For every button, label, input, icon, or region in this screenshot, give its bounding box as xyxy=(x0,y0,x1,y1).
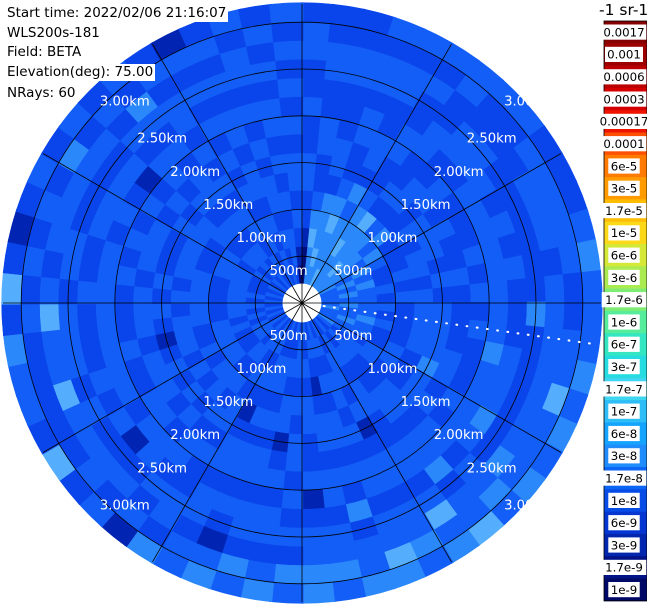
heatmap-cell xyxy=(39,302,60,332)
start-time-text: Start time: 2022/02/06 21:16:07 xyxy=(5,5,228,22)
range-ring-label: 2.50km xyxy=(137,132,187,147)
heatmap-cell xyxy=(301,583,335,604)
elevation-text: Elevation(deg): 75.00 xyxy=(5,64,155,81)
heatmap-cell xyxy=(77,302,97,328)
range-ring-label: 2.50km xyxy=(467,461,517,476)
colorbar-tick-label: 0.0017 xyxy=(603,25,644,39)
heatmap-cell xyxy=(2,302,23,336)
heatmap-cell xyxy=(284,134,303,154)
range-ring-label: 2.50km xyxy=(137,461,187,476)
heatmap-cell xyxy=(279,96,302,116)
colorbar-tick-label: 3e-5 xyxy=(611,182,638,196)
colorbar-tick-label: 6e-9 xyxy=(611,516,638,530)
heatmap-cell xyxy=(302,396,315,416)
colorbar-tick-label: 3e-8 xyxy=(611,449,638,463)
heatmap-cell xyxy=(269,3,303,24)
heatmap-cell xyxy=(302,378,313,398)
colorbar-tick-label: 3e-9 xyxy=(611,538,638,552)
range-ring-label: 2.50km xyxy=(467,132,517,147)
heatmap-cell xyxy=(301,489,324,509)
colorbar-tick-label: 0.0006 xyxy=(603,70,644,84)
colorbar-tick-label: 1e-6 xyxy=(611,315,638,329)
heatmap-cell xyxy=(488,280,508,303)
heatmap-cell xyxy=(414,289,434,304)
colorbar-tick-label: 6e-6 xyxy=(611,248,638,262)
heatmap-cell xyxy=(133,302,153,321)
range-ring-label: 1.00km xyxy=(237,231,287,246)
range-ring-label: 1.50km xyxy=(401,395,451,410)
heatmap-cell xyxy=(301,40,331,61)
heatmap-cell xyxy=(470,283,490,304)
lidar-scan-window: 500m1.00km1.50km2.00km2.50km3.00km500m1.… xyxy=(0,0,647,607)
heatmap-cell xyxy=(39,274,60,304)
colorbar-tick-label: 1.7e-8 xyxy=(605,471,643,485)
heatmap-cell xyxy=(273,40,303,61)
colorbar-tick-label: 3e-6 xyxy=(611,271,638,285)
colorbar-tick-label: 6e-8 xyxy=(611,427,638,441)
heatmap-cell xyxy=(277,78,303,98)
range-ring-label: 3.00km xyxy=(100,499,150,514)
nrays-text: NRays: 60 xyxy=(5,85,78,102)
heatmap-cell xyxy=(20,272,41,304)
heatmap-cell xyxy=(582,270,603,304)
colorbar-tick-label: 0.0003 xyxy=(603,92,644,106)
colorbar-unit-label: -1 sr-1 xyxy=(599,1,647,19)
range-ring-label: 1.50km xyxy=(401,198,451,213)
heatmap-cell xyxy=(208,303,228,314)
field-text: Field: BETA xyxy=(5,44,83,61)
heatmap-cell xyxy=(507,278,527,304)
range-ring-label: 1.50km xyxy=(203,395,253,410)
heatmap-cell xyxy=(563,272,584,304)
colorbar-tick-label: 1.7e-9 xyxy=(605,561,643,575)
heatmap-cell xyxy=(290,190,303,210)
heatmap-cell xyxy=(544,274,565,304)
heatmap-cell xyxy=(288,171,303,191)
heatmap-cell xyxy=(269,583,303,604)
range-ring-label: 1.00km xyxy=(368,362,418,377)
colorbar-tick-label: 6e-5 xyxy=(611,159,638,173)
colorbar-tick-label: 0.001 xyxy=(607,48,641,62)
range-ring-label: 500m xyxy=(334,264,372,279)
range-ring-label: 1.00km xyxy=(368,231,418,246)
heatmap-cell xyxy=(282,115,303,135)
colorbar-tick-label: 1e-9 xyxy=(611,583,638,597)
colorbar-tick-label: 0.0001 xyxy=(603,137,644,151)
heatmap-cell xyxy=(301,3,335,24)
instrument-text: WLS200s-181 xyxy=(5,25,102,42)
colorbar-tick-label: 1e-5 xyxy=(611,226,638,240)
colorbar-tick-label: 0.00017 xyxy=(600,115,647,129)
heatmap-cell xyxy=(301,21,333,42)
heatmap-cell xyxy=(273,545,303,566)
colorbar-tick-label: 1.7e-6 xyxy=(605,293,643,307)
range-ring-label: 500m xyxy=(270,329,308,344)
heatmap-cell xyxy=(451,285,471,304)
range-ring-label: 2.00km xyxy=(170,428,220,443)
heatmap-cell xyxy=(301,415,316,435)
heatmap-cell xyxy=(114,302,134,323)
range-ring-label: 2.00km xyxy=(434,428,484,443)
heatmap-cell xyxy=(301,545,331,566)
heatmap-cell xyxy=(2,270,23,304)
heatmap-cell xyxy=(301,471,322,491)
range-ring-label: 3.00km xyxy=(504,499,554,514)
colorbar-tick-label: 1e-8 xyxy=(611,494,638,508)
heatmap-cell xyxy=(301,508,327,528)
scan-info-panel: Start time: 2022/02/06 21:16:07 WLS200s-… xyxy=(5,5,228,104)
colorbar-tick-label: 1.7e-7 xyxy=(605,382,643,396)
heatmap-cell xyxy=(544,302,565,332)
range-ring-label: 2.00km xyxy=(434,165,484,180)
range-ring-label: 3.00km xyxy=(504,94,554,109)
heatmap-cell xyxy=(563,302,584,334)
heatmap-cell xyxy=(301,564,333,585)
heatmap-cell xyxy=(582,302,603,336)
range-ring-label: 2.00km xyxy=(170,165,220,180)
heatmap-cell xyxy=(95,302,115,325)
heatmap-cell xyxy=(20,302,41,334)
range-ring-label: 1.00km xyxy=(237,362,287,377)
range-ring-label: 500m xyxy=(270,264,308,279)
colorbar-tick-label: 3e-7 xyxy=(611,360,638,374)
colorbar-tick-label: 1.7e-5 xyxy=(605,204,643,218)
heatmap-cell xyxy=(271,564,303,585)
range-ring-label: 1.50km xyxy=(203,198,253,213)
heatmap-cell xyxy=(377,293,397,304)
heatmap-cell xyxy=(189,303,209,316)
heatmap-cell xyxy=(395,291,415,304)
heatmap-cell xyxy=(271,21,303,42)
colorbar-tick-label: 1e-7 xyxy=(611,405,638,419)
range-ring-label: 500m xyxy=(334,329,372,344)
colorbar-tick-label: 6e-7 xyxy=(611,338,638,352)
heatmap-cell xyxy=(170,302,190,317)
heatmap-cell xyxy=(301,452,320,472)
heatmap-cell xyxy=(292,209,303,229)
